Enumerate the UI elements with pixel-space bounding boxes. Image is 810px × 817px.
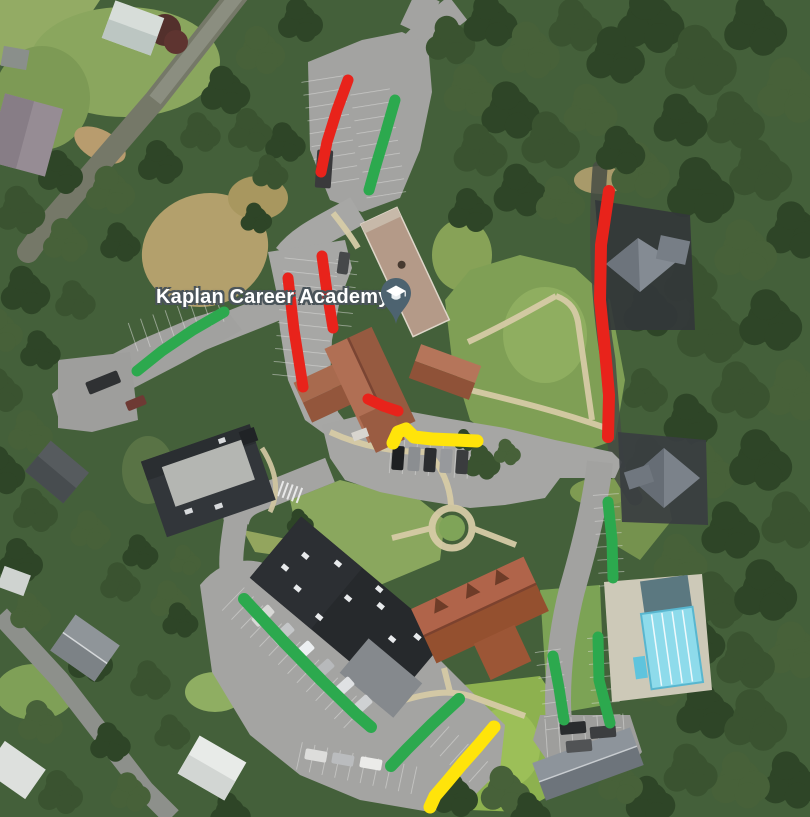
- annotation-green-east-row-upper: [608, 502, 613, 578]
- pin-body: [381, 278, 411, 324]
- roundabout-island: [439, 515, 465, 541]
- satellite-map[interactable]: Kaplan Career Academy: [0, 0, 810, 817]
- school-pin-icon[interactable]: [380, 277, 412, 327]
- map-canvas[interactable]: [0, 0, 810, 817]
- pool-area: [604, 574, 712, 702]
- place-label[interactable]: Kaplan Career Academy: [156, 286, 390, 309]
- house-mid-right: [618, 432, 708, 525]
